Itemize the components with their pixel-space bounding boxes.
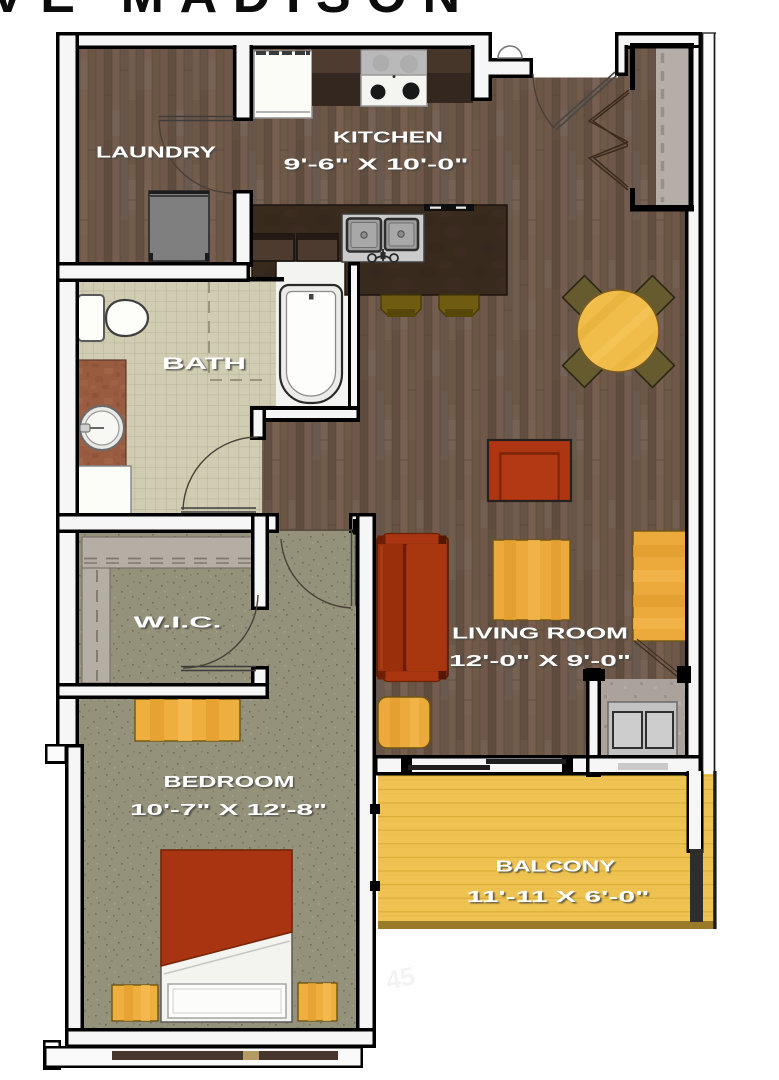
svg-text:45: 45 [383, 961, 418, 996]
svg-text:KITCHEN: KITCHEN [333, 130, 443, 147]
svg-text:LIVING ROOM: LIVING ROOM [452, 626, 628, 643]
svg-text:BEDROOM: BEDROOM [164, 774, 295, 791]
svg-text:BATH: BATH [162, 355, 246, 373]
svg-text:11'-11 X 6'-0": 11'-11 X 6'-0" [467, 889, 650, 906]
svg-text:10'-7" X 12'-8": 10'-7" X 12'-8" [130, 802, 327, 819]
svg-text:12'-0" X 9'-0": 12'-0" X 9'-0" [449, 653, 631, 670]
svg-text:LAUNDRY: LAUNDRY [96, 145, 217, 162]
svg-text:W.I.C.: W.I.C. [134, 615, 222, 632]
svg-text:BALCONY: BALCONY [496, 859, 616, 876]
svg-text:9'-6" X 10'-0": 9'-6" X 10'-0" [284, 157, 469, 174]
